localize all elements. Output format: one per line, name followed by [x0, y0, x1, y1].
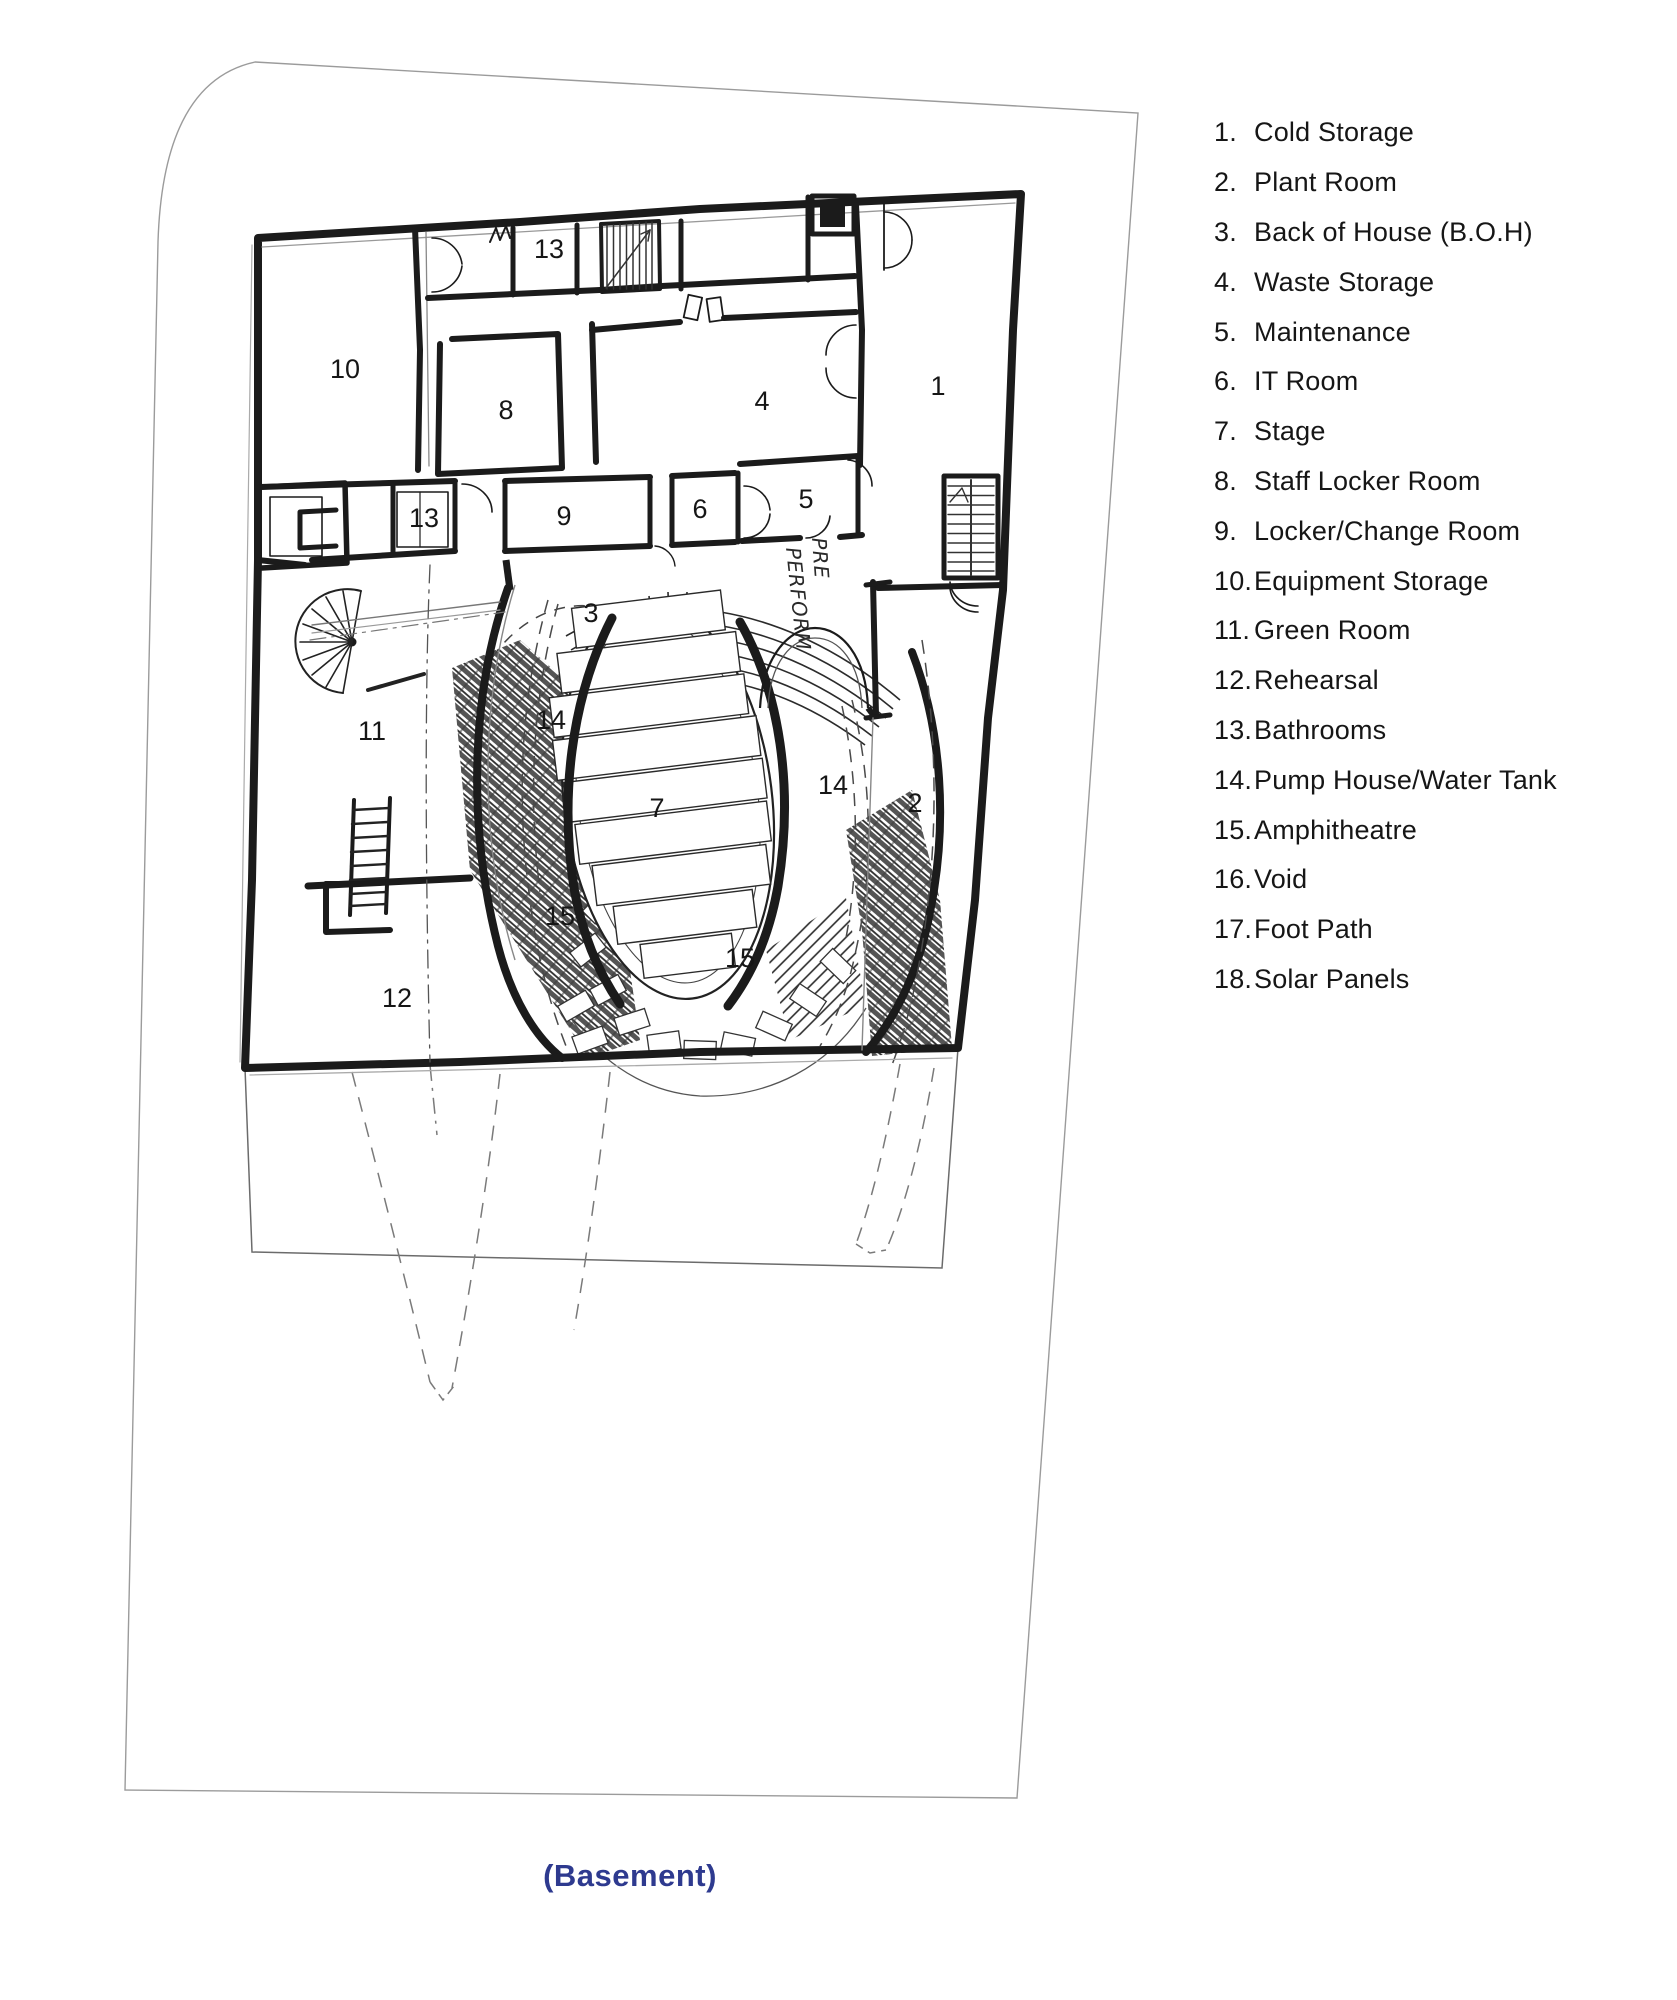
legend-num: 18. [1214, 964, 1254, 995]
legend-item-9: 9.Locker/Change Room [1214, 506, 1654, 556]
legend-item-11: 11.Green Room [1214, 606, 1654, 656]
legend-item-14: 14.Pump House/Water Tank [1214, 755, 1654, 805]
legend-item-10: 10.Equipment Storage [1214, 556, 1654, 606]
label-room-7: 7 [649, 793, 664, 823]
label-room-1: 1 [930, 371, 945, 401]
legend-item-15: 15.Amphitheatre [1214, 805, 1654, 855]
legend-num: 17. [1214, 914, 1254, 945]
legend-label: Plant Room [1254, 167, 1654, 198]
legend-label: Bathrooms [1254, 715, 1654, 746]
legend-num: 2. [1214, 167, 1254, 198]
legend-label: Stage [1254, 416, 1654, 447]
legend-item-2: 2.Plant Room [1214, 158, 1654, 208]
legend-num: 1. [1214, 117, 1254, 148]
label-room-15-left: 15 [545, 901, 575, 931]
legend-label: Rehearsal [1254, 665, 1654, 696]
label-room-4: 4 [754, 386, 769, 416]
legend-item-16: 16.Void [1214, 855, 1654, 905]
legend-num: 8. [1214, 466, 1254, 497]
legend-item-3: 3.Back of House (B.O.H) [1214, 208, 1654, 258]
label-room-11: 11 [358, 716, 386, 746]
legend: 1.Cold Storage 2.Plant Room 3.Back of Ho… [1214, 108, 1654, 1004]
legend-label: Pump House/Water Tank [1254, 765, 1654, 796]
legend-num: 5. [1214, 317, 1254, 348]
legend-num: 13. [1214, 715, 1254, 746]
lower-site-yard [245, 1048, 958, 1400]
legend-num: 15. [1214, 815, 1254, 846]
legend-label: Staff Locker Room [1254, 466, 1654, 497]
label-room-14-left: 14 [536, 705, 566, 735]
legend-label: Foot Path [1254, 914, 1654, 945]
legend-label: Waste Storage [1254, 267, 1654, 298]
legend-item-17: 17.Foot Path [1214, 905, 1654, 955]
legend-num: 7. [1214, 416, 1254, 447]
legend-num: 6. [1214, 366, 1254, 397]
legend-item-13: 13.Bathrooms [1214, 706, 1654, 756]
legend-num: 11. [1214, 615, 1254, 646]
legend-label: Void [1254, 864, 1654, 895]
foot-path-dashes [352, 1064, 934, 1400]
legend-label: Amphitheatre [1254, 815, 1654, 846]
legend-label: Solar Panels [1254, 964, 1654, 995]
label-room-3: 3 [583, 598, 598, 628]
legend-item-1: 1.Cold Storage [1214, 108, 1654, 158]
annotation-pre: PRE [807, 537, 834, 580]
legend-item-8: 8.Staff Locker Room [1214, 457, 1654, 507]
legend-label: Locker/Change Room [1254, 516, 1654, 547]
legend-label: Maintenance [1254, 317, 1654, 348]
legend-item-4: 4.Waste Storage [1214, 257, 1654, 307]
legend-num: 3. [1214, 217, 1254, 248]
legend-num: 9. [1214, 516, 1254, 547]
label-room-13-left: 13 [409, 503, 439, 533]
label-room-6: 6 [692, 494, 707, 524]
label-room-2: 2 [907, 788, 922, 818]
legend-num: 12. [1214, 665, 1254, 696]
legend-item-18: 18.Solar Panels [1214, 955, 1654, 1005]
label-room-15-right: 15 [725, 943, 755, 973]
legend-item-6: 6.IT Room [1214, 357, 1654, 407]
label-room-14-right: 14 [818, 770, 848, 800]
spiral-stair [295, 589, 424, 693]
legend-num: 4. [1214, 267, 1254, 298]
legend-label: Cold Storage [1254, 117, 1654, 148]
legend-item-5: 5.Maintenance [1214, 307, 1654, 357]
label-room-8: 8 [498, 395, 513, 425]
label-room-13-top: 13 [534, 234, 564, 264]
legend-label: Back of House (B.O.H) [1254, 217, 1654, 248]
label-room-12: 12 [382, 983, 412, 1013]
legend-item-12: 12.Rehearsal [1214, 656, 1654, 706]
legend-num: 10. [1214, 566, 1254, 597]
label-room-10: 10 [330, 354, 360, 384]
legend-label: IT Room [1254, 366, 1654, 397]
handwritten-annotation: PRE PERFORM [781, 537, 834, 652]
legend-item-7: 7.Stage [1214, 407, 1654, 457]
floor-caption: (Basement) [430, 1858, 830, 1894]
legend-label: Equipment Storage [1254, 566, 1654, 597]
label-room-9: 9 [556, 501, 571, 531]
legend-num: 14. [1214, 765, 1254, 796]
legend-label: Green Room [1254, 615, 1654, 646]
legend-num: 16. [1214, 864, 1254, 895]
ladder [326, 798, 390, 932]
label-room-5: 5 [798, 484, 813, 514]
